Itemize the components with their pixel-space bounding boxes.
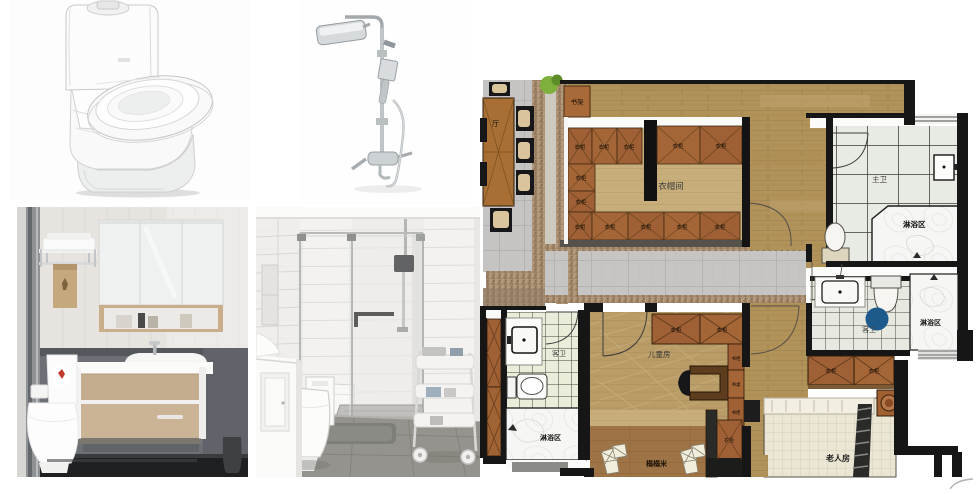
svg-text:衣柜: 衣柜: [724, 437, 734, 444]
svg-text:儿童房: 儿童房: [648, 349, 671, 359]
svg-text:衣柜: 衣柜: [604, 223, 616, 231]
svg-text:衣柜: 衣柜: [574, 223, 586, 231]
svg-text:衣柜: 衣柜: [825, 367, 837, 375]
svg-text:老人房: 老人房: [825, 453, 850, 463]
svg-text:衣柜: 衣柜: [623, 143, 635, 151]
svg-text:衣柜: 衣柜: [575, 174, 587, 182]
svg-text:衣柜: 衣柜: [715, 142, 727, 150]
svg-text:衣柜: 衣柜: [640, 223, 652, 231]
svg-text:书柜: 书柜: [732, 355, 741, 362]
svg-text:衣柜: 衣柜: [575, 198, 587, 206]
svg-text:厅: 厅: [492, 120, 499, 128]
svg-text:淋浴区: 淋浴区: [903, 219, 926, 229]
svg-text:衣柜: 衣柜: [574, 143, 586, 151]
svg-text:淋浴区: 淋浴区: [920, 318, 941, 327]
svg-text:衣柜: 衣柜: [868, 367, 880, 375]
svg-text:衣柜: 衣柜: [676, 223, 688, 231]
svg-text:客卫: 客卫: [552, 349, 566, 358]
svg-text:衣柜: 衣柜: [598, 143, 610, 151]
svg-text:客卫: 客卫: [862, 325, 876, 334]
svg-text:榻榻米: 榻榻米: [645, 459, 668, 468]
svg-text:书柜: 书柜: [732, 409, 741, 416]
svg-text:衣帽间: 衣帽间: [658, 181, 684, 191]
svg-text:衣柜: 衣柜: [670, 326, 682, 334]
svg-text:主卫: 主卫: [872, 174, 887, 184]
svg-text:衣柜: 衣柜: [716, 326, 728, 334]
svg-text:衣柜: 衣柜: [714, 223, 726, 231]
svg-text:书架: 书架: [571, 97, 585, 106]
svg-text:衣柜: 衣柜: [672, 142, 684, 150]
svg-text:书桌: 书桌: [732, 381, 741, 388]
svg-text:淋浴区: 淋浴区: [540, 433, 561, 442]
